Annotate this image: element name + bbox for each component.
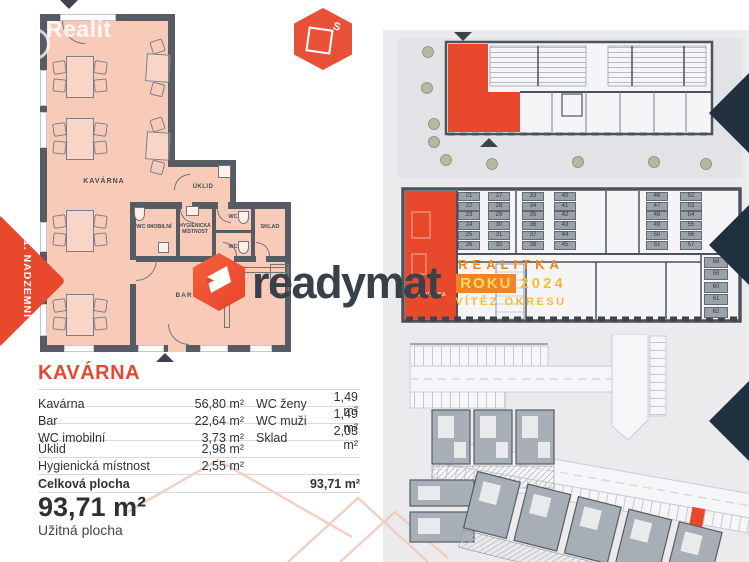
flyer-page: KAVÁRNA ÚKLID WC IMOBILNÍ HYGIENICKÁ MÍS… (0, 0, 749, 562)
storage-cell: 62 (704, 307, 728, 318)
award-badge-line3: VÍTĚZ OKRESU (449, 297, 573, 308)
cafe-chair (52, 140, 66, 154)
window (250, 345, 272, 352)
storage-cell: 21 (458, 192, 480, 201)
award-badge-year: 2024 (520, 276, 565, 291)
storage-cell: 31 (488, 231, 510, 240)
sink-fixture (186, 206, 199, 216)
compass-square-glyph (305, 26, 333, 54)
areas-table-total-row: Celková plocha 93,71 m² (38, 475, 360, 493)
cafe-table (66, 294, 94, 336)
storage-cell: 25 (458, 231, 480, 240)
table-cell: Bar (38, 414, 180, 428)
areas-table: Kavárna56,80 m²WC ženy1,49 m²Bar22,64 m²… (38, 389, 360, 493)
storage-cell: 23 (458, 211, 480, 220)
window (64, 345, 94, 352)
readymat-logo: readymat (193, 253, 440, 311)
room-label-kavarna: KAVÁRNA (64, 178, 144, 186)
unit-title: KAVÁRNA (38, 362, 140, 385)
room-label-wc-imobilni: WC IMOBILNÍ (134, 224, 174, 230)
table-cell: 22,64 m² (180, 414, 246, 428)
total-label: Celková plocha (38, 477, 310, 491)
table-cell: WC muži (246, 414, 324, 428)
storage-cell: 60 (704, 282, 728, 293)
storage-cell: 29 (488, 211, 510, 220)
table-cell: WC ženy (246, 397, 324, 411)
storage-cell: 40 (554, 192, 576, 201)
storage-cell: 61 (704, 294, 728, 305)
sink-fixture (158, 242, 169, 253)
award-badge: REALITKA ROKU 2024 VÍTĚZ OKRESU (449, 258, 573, 308)
cafe-table (66, 56, 94, 98)
storage-cell: 28 (488, 202, 510, 211)
storage-cell: 52 (680, 192, 702, 201)
storage-cell: 35 (522, 211, 544, 220)
table-cell: 56,80 m² (180, 397, 246, 411)
cafe-table (145, 53, 171, 83)
award-badge-line2: ROKU 2024 (449, 274, 573, 293)
storage-cell: 22 (458, 202, 480, 211)
wall (212, 230, 255, 233)
storage-cell: 51 (646, 241, 668, 250)
table-row: Hygienická místnost2,55 m² (38, 458, 360, 475)
entrance-marker-top (60, 0, 78, 9)
tree-icon (440, 154, 452, 166)
readymat-wordmark: readymat (252, 260, 440, 305)
door-opening (168, 345, 186, 352)
award-badge-word: ROKU (456, 274, 516, 293)
cafe-chair (93, 60, 108, 75)
cafe-chair (52, 232, 66, 246)
wall (130, 202, 291, 209)
site-plan-bottom (396, 334, 749, 562)
readymat-logo-icon (193, 253, 245, 311)
table-cell: Kavárna (38, 397, 180, 411)
cafe-chair (93, 316, 107, 330)
storage-cell: 42 (554, 211, 576, 220)
window (40, 70, 47, 106)
window (40, 222, 47, 252)
storage-cell: 38 (522, 241, 544, 250)
storage-cell: 27 (488, 192, 510, 201)
plan1-entrance-top (454, 32, 472, 41)
storage-cell: 48 (646, 211, 668, 220)
room-label-sklad: SKLAD (256, 224, 284, 230)
table-cell: 2,98 m² (180, 442, 246, 456)
cafe-chair (52, 316, 66, 330)
storage-cell: 49 (646, 221, 668, 230)
total-area-caption: Užitná plocha (38, 522, 123, 538)
storage-cell: 24 (458, 221, 480, 230)
storage-cell: 43 (554, 221, 576, 230)
room-label-wc-bottom: WC (216, 244, 250, 250)
cafe-chair (93, 140, 107, 154)
window (40, 304, 47, 336)
table-cell: 2,03 m² (324, 424, 360, 452)
storage-cell: 36 (522, 221, 544, 230)
door-opening (218, 202, 228, 209)
total-area-value: 93,71 m² (38, 492, 146, 523)
cleaning-sink-fixture (218, 165, 231, 178)
window (138, 345, 164, 352)
storage-cell: 59 (704, 269, 728, 280)
storage-cell: 30 (488, 221, 510, 230)
tree-icon (428, 136, 440, 148)
compass-north-letter: S (331, 20, 342, 34)
areas-table-body: Kavárna56,80 m²WC ženy1,49 m²Bar22,64 m²… (38, 390, 360, 475)
storage-cell: 41 (554, 202, 576, 211)
table-cell: Sklad (246, 431, 324, 445)
tree-icon (572, 156, 584, 168)
storage-cell: 32 (488, 241, 510, 250)
storage-cell: 47 (646, 202, 668, 211)
table-row: Kavárna56,80 m²WC ženy1,49 m² (38, 390, 360, 407)
storage-cell: 55 (680, 221, 702, 230)
storage-cell: 50 (646, 231, 668, 240)
storage-cell: 37 (522, 231, 544, 240)
window (40, 112, 47, 148)
cafe-chair (93, 298, 108, 313)
cafe-chair (93, 122, 108, 137)
cafe-table (66, 210, 94, 252)
entrance-marker-bottom (156, 353, 174, 362)
storage-cell: 34 (522, 202, 544, 211)
tree-icon (486, 158, 498, 170)
cafe-table (145, 131, 171, 161)
cafe-chair (52, 122, 67, 137)
cafe-chair (93, 78, 107, 92)
table-cell: Hygienická místnost (38, 459, 180, 473)
cafe-chair (52, 214, 67, 229)
compass-icon: S (294, 8, 352, 70)
total-value: 93,71 m² (310, 477, 360, 491)
tree-icon (648, 156, 660, 168)
room-label-uklid: ÚKLID (182, 184, 224, 191)
room-label-wc-top: WC (216, 214, 250, 220)
cafe-chair (52, 78, 66, 92)
cafe-chair (93, 232, 107, 246)
storage-cell: 46 (646, 192, 668, 201)
room-label-hygienicka: HYGIENICKÁ MÍSTNOST (178, 224, 212, 236)
storage-cell: 26 (458, 241, 480, 250)
storage-cell: 57 (680, 241, 702, 250)
storage-cell: 45 (554, 241, 576, 250)
window (200, 345, 228, 352)
tree-icon (422, 46, 434, 58)
cafe-chair (52, 60, 67, 75)
plan1-entrance-bottom (480, 138, 498, 147)
tree-icon (421, 82, 433, 94)
storage-cell: 54 (680, 211, 702, 220)
site-plan-top (396, 30, 746, 180)
toilet-fixture (134, 207, 145, 221)
storage-cell: 33 (522, 192, 544, 201)
cafe-chair (52, 298, 67, 313)
storage-cell: 56 (680, 231, 702, 240)
cafe-chair (93, 214, 108, 229)
award-badge-line1: REALITKA (449, 258, 573, 271)
storage-cell: 44 (554, 231, 576, 240)
realit-watermark: Realit (46, 16, 112, 43)
cafe-table (66, 118, 94, 160)
floor-ribbon-label: 1. NADZEMNÍ (21, 224, 33, 334)
table-cell: Úklid (38, 442, 180, 456)
tree-icon (700, 158, 712, 170)
storage-cell: 53 (680, 202, 702, 211)
table-cell: 2,55 m² (180, 459, 246, 473)
tree-icon (428, 118, 440, 130)
